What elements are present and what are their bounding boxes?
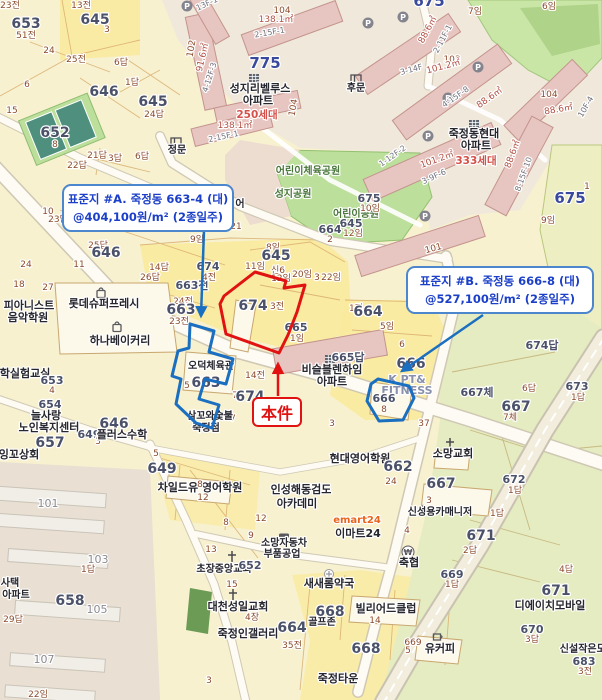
map-label: 25전 bbox=[66, 54, 86, 65]
callout-b-line2: @527,100원/m² (2종일주) bbox=[410, 290, 590, 308]
svg-text:P: P bbox=[425, 132, 431, 141]
map-label: 2 bbox=[327, 235, 333, 245]
map-label: 645 bbox=[261, 248, 290, 264]
map-label: 3 bbox=[104, 25, 110, 35]
map-label: 657 bbox=[35, 435, 64, 451]
map-label: 9임 bbox=[190, 233, 204, 245]
map-label: 신설작은도서관 bbox=[560, 642, 602, 655]
map-label: 6임 bbox=[542, 0, 556, 12]
map-label: 5임 bbox=[380, 320, 394, 332]
map-label: 51전 bbox=[16, 30, 36, 41]
map-label: 비슬블렌하임 bbox=[302, 362, 363, 376]
parking-icon: P bbox=[182, 1, 193, 12]
map-label: 5 bbox=[153, 449, 159, 459]
map-label: emart24 bbox=[333, 515, 381, 526]
map-label: 어린이체육공원 bbox=[276, 164, 340, 177]
map-label: 죽정동현대 bbox=[449, 126, 500, 140]
map-label: 소망자동차 bbox=[261, 536, 308, 549]
map-label: 14 bbox=[369, 616, 381, 626]
map-label: 유커피 bbox=[425, 641, 455, 655]
map-label: 29답 bbox=[3, 613, 23, 625]
map-label: 250세대 bbox=[236, 108, 277, 121]
map-label: 333세대 bbox=[455, 154, 496, 167]
map-label: 9 bbox=[248, 531, 254, 541]
map-label: 22임 bbox=[28, 688, 48, 700]
map-label: 23전 bbox=[0, 0, 20, 11]
map-label: 12임 bbox=[343, 227, 363, 239]
map-label: 20임 bbox=[292, 268, 312, 280]
map-label: 24 bbox=[43, 46, 55, 56]
svg-text:P: P bbox=[365, 19, 371, 28]
map-label: 1답 bbox=[571, 391, 585, 403]
map-label: 672 bbox=[503, 473, 526, 486]
map-label: 하나베이커리 bbox=[90, 333, 151, 347]
map-label: 675 bbox=[413, 0, 444, 10]
map-label: 12 bbox=[197, 493, 208, 503]
map-label: 101 bbox=[38, 497, 59, 510]
map-label: 3답 bbox=[108, 152, 122, 164]
map-label: 8 bbox=[197, 480, 203, 490]
map-label: 663 bbox=[166, 302, 195, 318]
map-label: 35전 bbox=[282, 640, 302, 651]
map-label: 26답 bbox=[140, 271, 160, 283]
map-label: 653 bbox=[11, 16, 40, 32]
map-label: 23전 bbox=[169, 316, 189, 327]
map-label: 빌리어드클럽 bbox=[356, 601, 417, 615]
svg-text:P: P bbox=[475, 63, 481, 72]
map-label: 축협 bbox=[399, 555, 419, 569]
map-label: 22답 bbox=[67, 159, 87, 171]
map-label: 15 bbox=[6, 106, 17, 116]
map-label: 646 bbox=[89, 84, 118, 100]
map-label: 아파트 bbox=[461, 138, 491, 152]
map-label: 6답 bbox=[522, 382, 536, 394]
map-label: 롯데슈퍼프레시 bbox=[69, 296, 140, 310]
map-label: 3전 bbox=[578, 666, 592, 677]
map-label: 아파트 bbox=[317, 374, 347, 388]
map-label: 11 bbox=[73, 260, 84, 270]
map-label: 아파트 bbox=[2, 588, 30, 601]
map-label: 645 bbox=[138, 94, 167, 110]
map-label: 성지리벨루스 bbox=[230, 81, 291, 95]
map-label: 673 bbox=[566, 380, 589, 393]
map-label: 7체 bbox=[503, 412, 517, 423]
map-label: 3답 bbox=[525, 633, 539, 645]
map-label: 현대영어학원 bbox=[330, 451, 391, 465]
map-label: 7임 bbox=[468, 5, 482, 17]
map-label: 6답 bbox=[135, 150, 149, 162]
map-label: 1답 bbox=[508, 484, 522, 496]
map-label: 37 bbox=[418, 419, 429, 429]
map-label: 3 bbox=[314, 273, 320, 283]
map-label: 11임 bbox=[245, 260, 265, 272]
map-label: 27 bbox=[42, 283, 53, 293]
map-label: 소망교회 bbox=[433, 446, 473, 460]
map-label: 죽정인갤러리 bbox=[218, 626, 279, 640]
map-label: 138.1㎡ bbox=[259, 14, 294, 25]
map-label: 3전 bbox=[270, 301, 284, 312]
map-label: 674답 bbox=[525, 338, 558, 352]
map-label: 이마트24 bbox=[335, 526, 381, 540]
map-canvas[interactable]: PPPPPPP₩ 23전65351전13전64532425전6답1답646645… bbox=[0, 0, 602, 700]
map-label: 107 bbox=[34, 653, 55, 666]
map-label: 4 bbox=[49, 386, 55, 396]
map-label: 3 bbox=[329, 419, 335, 429]
map-label: 후문 bbox=[347, 81, 365, 94]
parking-icon: P bbox=[423, 131, 434, 142]
map-label: 어 bbox=[235, 197, 244, 210]
callout-b-line1: 표준지 #B. 죽정동 666-8 (대) bbox=[410, 272, 590, 290]
svg-text:P: P bbox=[184, 2, 190, 11]
map-label: 1임 bbox=[290, 332, 304, 344]
map-label: 664 bbox=[277, 620, 306, 636]
map-label: 플러스수학 bbox=[97, 427, 148, 441]
map-label: 아파트 bbox=[243, 93, 273, 107]
map-label: 새새롬약국 bbox=[304, 576, 355, 590]
map-label: 1답 bbox=[490, 507, 504, 519]
map-label: 24 bbox=[20, 260, 32, 270]
map-label: 5 bbox=[405, 646, 411, 656]
callout-standard-parcel-a: 표준지 #A. 죽정동 663-4 (대) @404,100원/m² (2종일주… bbox=[62, 184, 234, 232]
map-label: 4 bbox=[404, 526, 410, 536]
map-label: 664 bbox=[353, 304, 382, 320]
map-label: 1답 bbox=[81, 563, 95, 575]
map-label: 대천성일교회 bbox=[208, 599, 269, 613]
map-label: 2답 bbox=[463, 544, 477, 556]
map-label: 인성해동검도 bbox=[271, 482, 332, 496]
map-label: 21답 bbox=[87, 149, 107, 161]
map-label: 674 bbox=[238, 298, 267, 314]
map-label: 9임 bbox=[541, 214, 555, 226]
map-label: 사택 bbox=[1, 576, 19, 589]
map-label: 14전 bbox=[245, 370, 265, 381]
parking-icon: P bbox=[473, 62, 484, 73]
map-label: 3 bbox=[426, 496, 432, 506]
map-label: 성지공원 bbox=[275, 187, 312, 200]
parking-icon: P bbox=[398, 12, 409, 23]
map-label: 674 bbox=[197, 260, 220, 273]
map-label: 1답 bbox=[125, 76, 139, 88]
map-label: 105 bbox=[87, 603, 108, 616]
map-label: 6답 bbox=[114, 56, 128, 68]
map-label: 피아니스트 bbox=[4, 298, 55, 312]
map-label: 665답 bbox=[331, 350, 364, 364]
map-label: 노인복지센터 bbox=[19, 420, 80, 434]
map-label: 658 bbox=[55, 593, 84, 609]
map-label: 775 bbox=[249, 54, 280, 72]
map-label: 오덕체육관 bbox=[188, 359, 235, 372]
map-label: 652 bbox=[239, 559, 262, 572]
svg-text:P: P bbox=[422, 212, 428, 221]
map-label: 646 bbox=[91, 245, 120, 261]
map-label: 675 bbox=[554, 189, 585, 207]
map-label: 부품공업 bbox=[264, 547, 301, 560]
map-label: 14답 bbox=[149, 261, 169, 273]
map-label: 649 bbox=[147, 461, 176, 477]
map-label: 8 bbox=[381, 405, 387, 415]
svg-text:P: P bbox=[400, 13, 406, 22]
map-label: 652 bbox=[40, 125, 69, 141]
map-label: 668 bbox=[315, 604, 344, 620]
map-label: 13 bbox=[205, 545, 216, 555]
map-label: 666 bbox=[373, 392, 396, 405]
map-label: 671 bbox=[541, 583, 570, 599]
subject-label: 本件 bbox=[261, 404, 293, 423]
map-label: 15 bbox=[226, 580, 237, 590]
subject-parcel-box: 本件 bbox=[252, 397, 302, 427]
map-label: 잉꼬상회 bbox=[0, 447, 39, 461]
map-label: 1 bbox=[584, 182, 590, 192]
parking-icon: P bbox=[363, 18, 374, 29]
callout-standard-parcel-b: 표준지 #B. 죽정동 666-8 (대) @527,100원/m² (2종일주… bbox=[406, 266, 594, 314]
map-label: 3 bbox=[206, 676, 212, 686]
map-label: 죽정타운 bbox=[318, 671, 358, 685]
map-label: 22임 bbox=[321, 271, 341, 283]
map-label: 음악학원 bbox=[8, 310, 48, 324]
map-label: 정문 bbox=[168, 143, 186, 156]
map-label: 아카데미 bbox=[277, 496, 317, 510]
map-label: 668 bbox=[351, 641, 380, 657]
map-label: 24답 bbox=[144, 108, 164, 120]
map-label: 18 bbox=[13, 280, 25, 290]
parking-icon: P bbox=[420, 211, 431, 222]
appraisal-map-page: PPPPPPP₩ 23전65351전13전64532425전6답1답646645… bbox=[0, 0, 602, 700]
map-label: 24 bbox=[385, 477, 397, 487]
map-label: 104 bbox=[540, 90, 557, 100]
callout-a-line2: @404,100원/m² (2종일주) bbox=[66, 208, 230, 226]
map-label: 8 bbox=[223, 518, 229, 528]
map-label: 662 bbox=[383, 459, 412, 475]
building-icon bbox=[249, 74, 259, 82]
map-label: 671 bbox=[466, 528, 495, 544]
map-label: 6 bbox=[24, 80, 30, 90]
map-label: 8 bbox=[52, 140, 58, 150]
map-label: 4전 bbox=[202, 272, 216, 283]
map-label: 12 bbox=[255, 514, 266, 524]
callout-a-line1: 표준지 #A. 죽정동 663-4 (대) bbox=[66, 190, 230, 208]
map-label: 5 bbox=[184, 381, 190, 391]
map-label: 667 bbox=[426, 476, 455, 492]
map-label: 늘사랑 bbox=[31, 408, 61, 422]
map-label: 신성용카매니저 bbox=[408, 505, 472, 518]
map-label: 디에이치모바일 bbox=[515, 598, 586, 612]
map-label: 6 bbox=[399, 340, 405, 350]
map-label: 1답 bbox=[445, 578, 459, 590]
map-label: 667체 bbox=[460, 385, 493, 399]
map-label: 4답 bbox=[559, 563, 573, 575]
map-label: 4장 bbox=[245, 612, 259, 623]
map-label: 13전 bbox=[71, 0, 91, 11]
map-label: 10임 bbox=[360, 202, 380, 214]
